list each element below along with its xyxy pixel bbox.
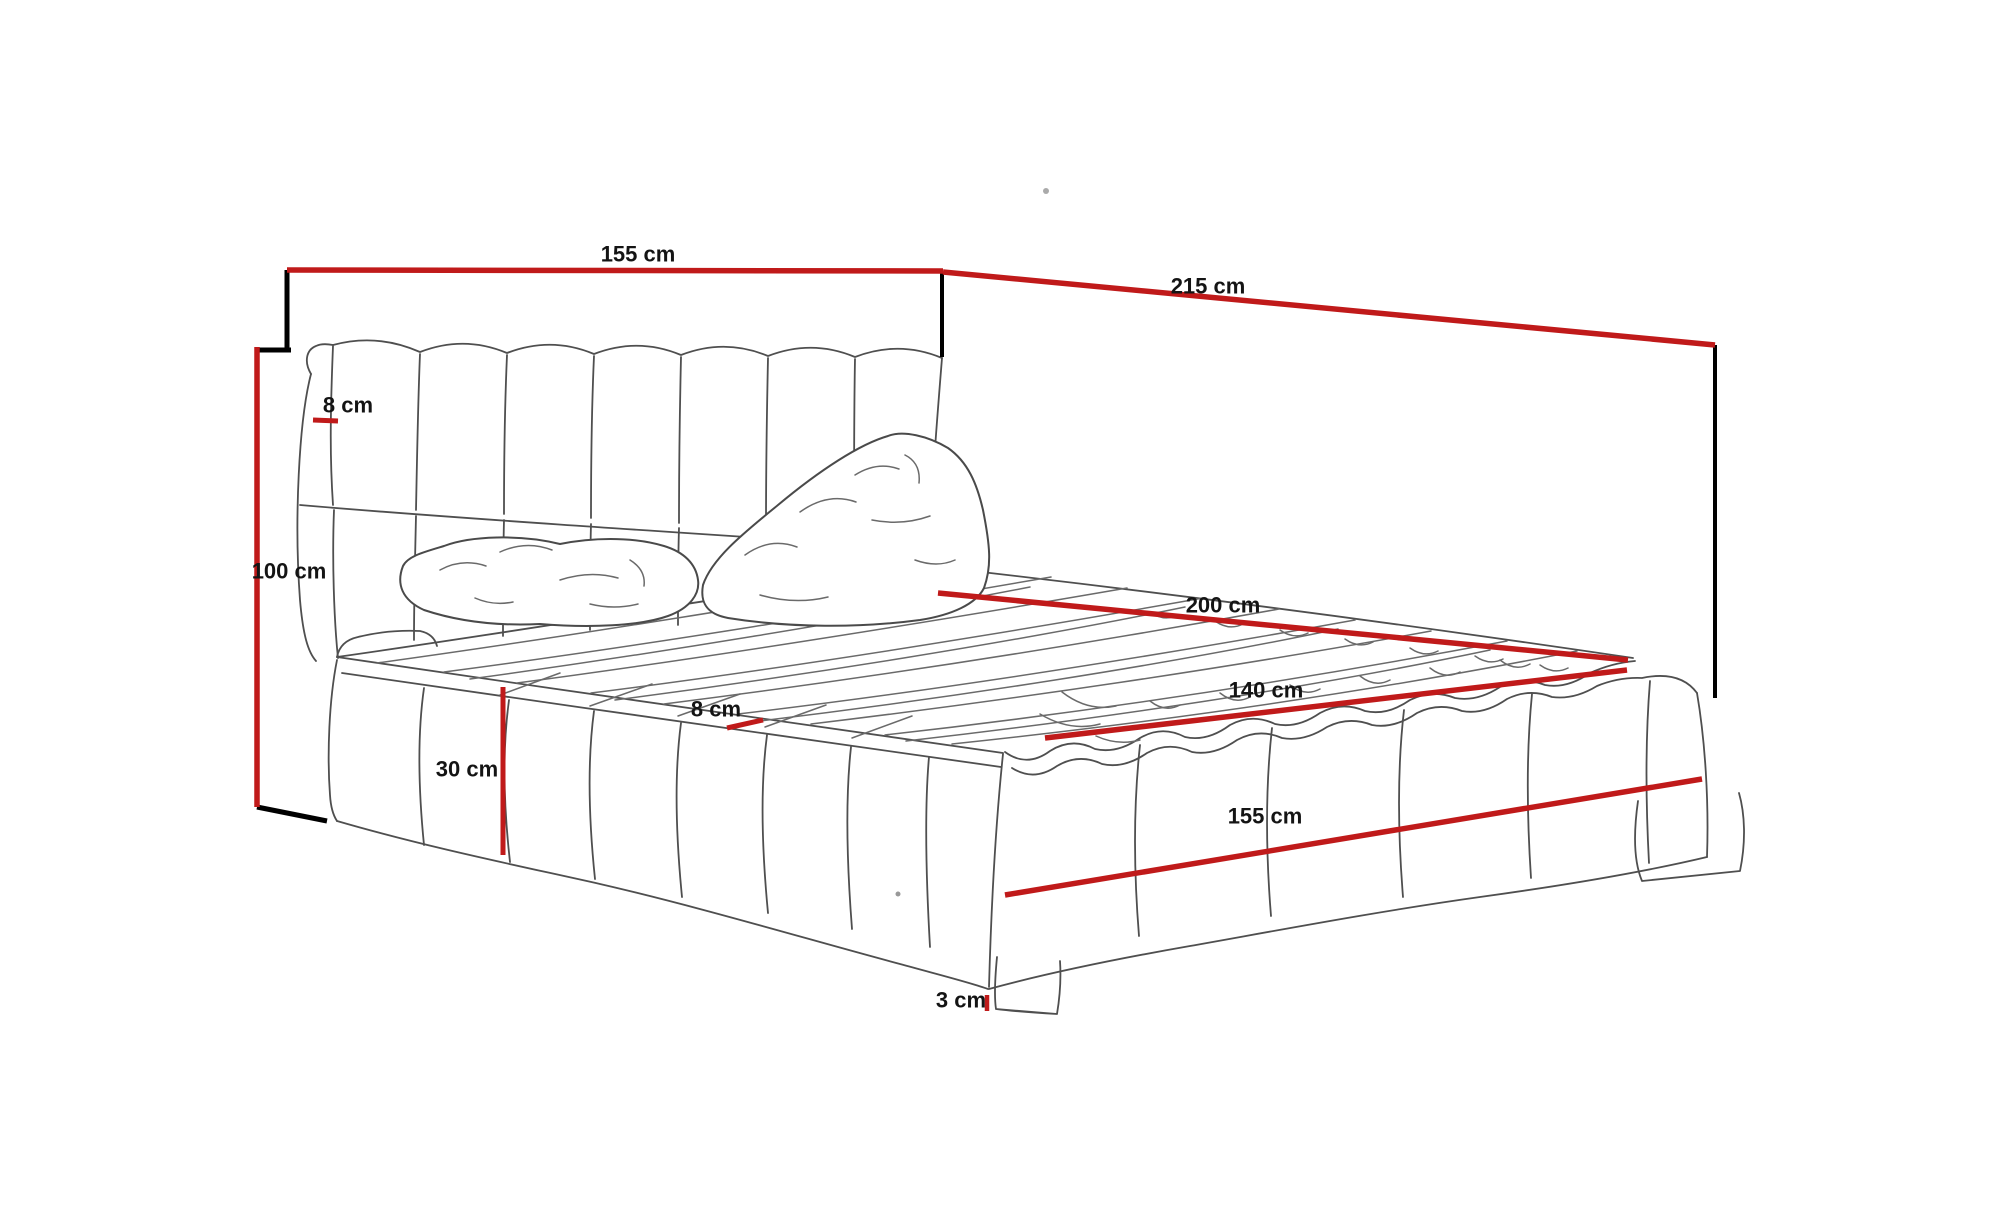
dimension-leg-height: 3 cm [936, 988, 987, 1013]
bed-base [329, 660, 1708, 989]
base-near-corner-edge [989, 754, 1003, 987]
dimension-label-headboard-width: 155 cm [601, 242, 676, 267]
tick-height-bottom [257, 807, 327, 821]
dimension-label-leg-height: 3 cm [936, 988, 986, 1013]
paper-speck [1043, 188, 1049, 194]
paper-speck [896, 892, 901, 897]
dimension-bed-length: 215 cm [943, 272, 1715, 345]
dimension-label-bed-length: 215 cm [1171, 274, 1246, 299]
dimension-line-headboard-thickness [313, 420, 338, 421]
headboard-left-edge [297, 374, 316, 661]
dimension-label-headboard-thickness: 8 cm [323, 393, 373, 418]
dimension-headboard-thickness: 8 cm [313, 393, 373, 422]
dimension-line-headboard-width [287, 270, 943, 271]
pillows [400, 434, 989, 626]
dimension-base-height: 30 cm [436, 687, 503, 855]
diagram-canvas: 155 cm215 cm100 cm8 cm30 cm8 cm200 cm140… [0, 0, 2000, 1222]
dimension-label-base-height: 30 cm [436, 757, 498, 782]
dimension-line-base-width [1005, 779, 1702, 895]
dimension-label-mattress-length: 200 cm [1186, 593, 1261, 618]
base-left-end-edge [329, 660, 337, 821]
dimension-headboard-height: 100 cm [252, 347, 327, 807]
base-foot-right-edge [1697, 693, 1708, 857]
pillow-right [702, 434, 989, 626]
base-left-column-seams [420, 688, 931, 947]
base-left-bottom-edge [337, 821, 988, 989]
dimension-label-headboard-height: 100 cm [252, 559, 327, 584]
dimension-label-mattress-width: 140 cm [1229, 678, 1304, 703]
headboard-top-scallops [307, 340, 942, 374]
base-foot-bottom-edge [989, 857, 1707, 989]
dimension-base-width: 155 cm [1005, 779, 1702, 895]
dimension-label-frame-rail-thickness: 8 cm [691, 697, 741, 722]
dimension-headboard-width: 155 cm [287, 242, 943, 272]
legs [995, 793, 1744, 1014]
pillow-left [400, 537, 698, 626]
dimension-label-base-width: 155 cm [1228, 804, 1303, 829]
dimension-lines: 155 cm215 cm100 cm8 cm30 cm8 cm200 cm140… [252, 242, 1715, 1013]
rear-right-leg [1635, 793, 1744, 881]
dimension-line-bed-length [943, 272, 1715, 345]
mattress-front-rumple-edge [1005, 661, 1635, 760]
bed-dimension-diagram: 155 cm215 cm100 cm8 cm30 cm8 cm200 cm140… [0, 0, 2000, 1222]
